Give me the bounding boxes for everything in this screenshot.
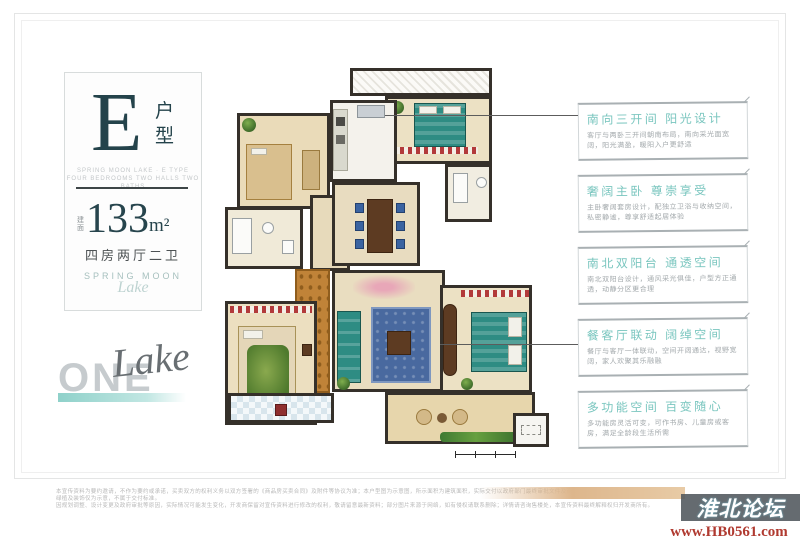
dimension-ruler — [455, 454, 515, 455]
dining-chair — [355, 221, 364, 231]
pillow-icon — [443, 106, 461, 114]
bed-north — [414, 103, 466, 147]
pillow-icon — [508, 317, 522, 337]
floorplan-flyer: E 户型 SPRING MOON LAKE · E TYPE FOUR BEDR… — [0, 0, 800, 543]
nightstand-icon — [302, 344, 312, 356]
sink-icon — [336, 135, 345, 144]
balcony-chair — [452, 409, 468, 425]
unit-info-panel: E 户型 SPRING MOON LAKE · E TYPE FOUR BEDR… — [64, 72, 202, 311]
plant-icon — [337, 377, 350, 390]
room-north-balcony — [350, 68, 492, 96]
callout-body: 客厅与两卧三开间朝南布局，南向采光面宽阔，阳光满盈，暖阳入户更舒适 — [587, 130, 739, 152]
logo-underline — [58, 393, 186, 402]
decor-banner — [230, 306, 312, 313]
pillow-icon — [419, 106, 437, 114]
sofa-living — [337, 311, 361, 383]
gradient-bar — [480, 487, 685, 499]
floor-plan — [210, 55, 545, 465]
callout-connector-1 — [385, 115, 578, 116]
room-balcony-west — [228, 393, 334, 423]
pillow-icon — [251, 148, 267, 155]
room-bathroom-west — [225, 207, 303, 269]
callout-body: 南北双阳台设计，通风采光俱佳，户型方正通透，动静分区更合理 — [587, 274, 739, 296]
room-count-label: 四房两厅二卫 — [65, 245, 201, 264]
balcony-decor — [275, 404, 287, 416]
wardrobe-icon — [443, 304, 457, 376]
room-kitchen — [330, 100, 397, 182]
room-bedroom-north — [385, 96, 492, 164]
bed-study — [246, 144, 292, 200]
decor-banner — [461, 290, 529, 297]
pillow-icon — [243, 330, 263, 339]
sink-icon — [262, 222, 274, 234]
bed-east — [471, 312, 527, 372]
balcony-table — [437, 413, 447, 423]
area-prefix-label: 建面 — [77, 217, 86, 233]
callout-body: 餐厅与客厅一体联动，空间开阔通达，视野宽阔，家人欢聚其乐融融 — [587, 346, 739, 368]
watermark-site-name: 淮北论坛 — [697, 493, 785, 523]
dining-chair — [396, 221, 405, 231]
unit-subtitle-line1: SPRING MOON LAKE · E TYPE — [65, 167, 201, 175]
pillow-icon — [508, 345, 522, 365]
dining-chair — [396, 239, 405, 249]
dining-chair — [396, 203, 405, 213]
toilet-icon — [282, 240, 294, 254]
watermark-site-badge: 淮北论坛 — [681, 494, 800, 521]
panel-divider — [76, 187, 188, 189]
dining-chair — [355, 239, 364, 249]
watermark-url-row: www.HB0561.com — [658, 521, 800, 543]
wall-art-blossom — [353, 275, 415, 299]
ac-unit-box — [513, 413, 549, 447]
area-row: 建面 133 m² — [77, 197, 169, 241]
fridge-icon — [357, 105, 385, 118]
decor-banner — [392, 147, 478, 154]
toilet-icon — [476, 177, 487, 188]
dining-table — [367, 199, 393, 253]
callout-box-1: 南向三开间 阳光设计 客厅与两卧三开间朝南布局，南向采光面宽阔，阳光满盈，暖阳入… — [578, 101, 749, 161]
callout-body: 多功能房灵活可变，可作书房、儿童房或客房，满足全龄段生活所需 — [587, 418, 739, 440]
callout-title: 多功能空间 百变随心 — [587, 397, 739, 416]
callout-title: 南北双阳台 通透空间 — [587, 253, 739, 272]
brand-script: Lake — [65, 279, 201, 297]
area-unit: m² — [149, 211, 169, 241]
unit-letter: E — [91, 81, 142, 165]
unit-type-label: 户型 — [155, 99, 177, 149]
room-bedroom-east — [440, 285, 532, 393]
callout-box-3: 南北双阳台 通透空间 南北双阳台设计，通风采光俱佳，户型方正通透，动静分区更合理 — [578, 245, 749, 305]
room-living — [332, 270, 445, 392]
callout-title: 餐客厅联动 阔绰空间 — [587, 325, 739, 344]
desk-icon — [302, 150, 320, 190]
ruler-tick — [495, 451, 496, 458]
plant-icon — [242, 118, 256, 132]
plant-icon — [461, 378, 473, 390]
dining-chair — [355, 203, 364, 213]
callout-body: 主卧奢阔套房设计，配独立卫浴与收纳空间，私密静谧，尊享舒适起居体验 — [587, 202, 739, 224]
watermark-url: www.HB0561.com — [670, 524, 788, 541]
ac-unit-icon — [521, 425, 541, 435]
callout-connector-4 — [440, 344, 578, 345]
coffee-table — [387, 331, 411, 355]
bathtub-icon — [453, 173, 468, 203]
callout-box-2: 奢阔主卧 尊崇享受 主卧奢阔套房设计，配独立卫浴与收纳空间，私密静谧，尊享舒适起… — [578, 173, 749, 233]
callout-box-5: 多功能空间 百变随心 多功能房灵活可变，可作书房、儿童房或客房，满足全龄段生活所… — [578, 389, 749, 449]
balcony-chair — [416, 409, 432, 425]
ruler-tick — [475, 451, 476, 458]
logo-lake-script: Lake — [110, 332, 192, 387]
area-value: 133 — [86, 197, 149, 241]
room-bathroom-north — [445, 164, 492, 222]
callout-title: 奢阔主卧 尊崇享受 — [587, 181, 739, 200]
ruler-tick — [515, 451, 516, 458]
ruler-tick — [455, 451, 456, 458]
callout-box-4: 餐客厅联动 阔绰空间 餐厅与客厅一体联动，空间开阔通达，视野宽阔，家人欢聚其乐融… — [578, 317, 749, 377]
bathtub-icon — [232, 218, 252, 254]
stove-icon — [336, 117, 345, 126]
callout-title: 南向三开间 阳光设计 — [587, 109, 739, 128]
room-dining — [332, 182, 420, 266]
disclaimer-line2: 因规划调整、设计变更及政府审批等原因，实际情况可能发生变化，开发商保留对宣传资料… — [56, 503, 668, 510]
